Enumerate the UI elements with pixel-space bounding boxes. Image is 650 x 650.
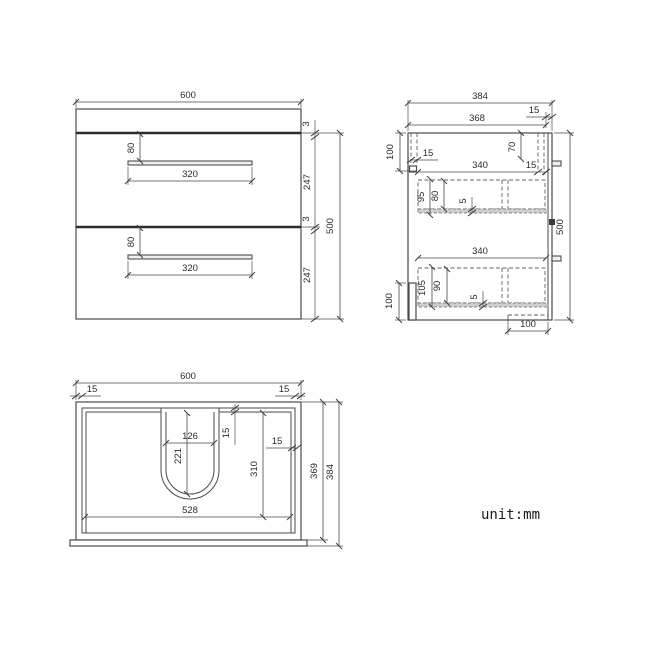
front-dim-label-247-1: 247	[302, 174, 313, 190]
front-dim-label-80-1: 80	[126, 143, 137, 154]
side-dim-label-15-front: 15	[526, 160, 537, 171]
drawing-svg: 600 80 320 80 320	[0, 0, 650, 650]
plan-dim-label-15-topwall: 15	[221, 428, 232, 439]
plan-dim-overall-width: 600 15 15	[70, 371, 305, 400]
side-dim-top: 384 368 15	[408, 91, 556, 131]
side-dim-label-80: 80	[430, 191, 441, 202]
plan-dim-label-15-sidewall: 15	[272, 436, 283, 447]
plan-dim-label-600: 600	[180, 371, 196, 382]
side-dim-label-100-top: 100	[385, 144, 396, 160]
front-dim-right-chain: 3 247 3 247	[301, 120, 344, 322]
side-dim-label-90: 90	[432, 281, 443, 292]
front-dim-label-500: 500	[325, 218, 336, 234]
front-drawer2-handle	[128, 255, 252, 259]
plan-dim-label-528: 528	[182, 505, 198, 516]
front-view: 600 80 320 80 320	[76, 90, 344, 322]
plan-dim-label-310: 310	[249, 461, 260, 477]
front-cabinet-outline	[76, 109, 301, 319]
plan-dim-label-384: 384	[325, 464, 336, 480]
plan-outline	[76, 402, 301, 540]
side-dim-label-70: 70	[507, 142, 518, 153]
side-dim-label-5-1: 5	[458, 198, 469, 203]
side-dim-label-340-1: 340	[472, 160, 488, 171]
front-dim-label-320-1: 320	[182, 169, 198, 180]
side-dim-label-15-back: 15	[423, 148, 434, 159]
side-dim-label-340-2: 340	[472, 246, 488, 257]
side-drawer2-handle	[552, 256, 561, 261]
plan-dim-label-369: 369	[309, 463, 320, 479]
side-dim-label-100-bottom: 100	[520, 319, 536, 330]
front-dim-label-320-2: 320	[182, 263, 198, 274]
front-dim-label-80-2: 80	[126, 237, 137, 248]
plan-dim-label-221: 221	[173, 448, 184, 464]
side-drawer1-handle	[552, 161, 561, 166]
plan-dim-label-15-left: 15	[87, 384, 98, 395]
plan-view: 126 221 15 15 310 528	[70, 371, 343, 546]
front-dim-label-600: 600	[180, 90, 196, 101]
side-dim-label-5-2: 5	[469, 294, 480, 299]
side-bottom-back-panel: 100	[384, 283, 416, 320]
side-view: 384 368 15 100 15 70	[384, 91, 574, 335]
vanity-technical-drawing: 600 80 320 80 320	[0, 0, 650, 650]
side-dim-label-100-left: 100	[384, 293, 395, 309]
front-dim-label-3-mid: 3	[301, 216, 312, 221]
front-dim-label-3-top: 3	[301, 121, 312, 126]
plan-dim-label-126: 126	[182, 431, 198, 442]
front-dim-label-247-2: 247	[302, 267, 313, 283]
side-dim-label-368: 368	[469, 113, 485, 124]
side-dim-label-15-top: 15	[529, 105, 540, 116]
front-drawer1-handle	[128, 161, 252, 165]
side-dim-label-384: 384	[472, 91, 488, 102]
front-dim-overall-height: 500	[325, 133, 340, 319]
front-dim-overall-width: 600	[76, 90, 301, 108]
plan-dim-label-15-right: 15	[279, 384, 290, 395]
side-dim-label-500: 500	[555, 219, 566, 235]
plan-bottom-band	[70, 540, 307, 546]
side-dim-label-105: 105	[417, 280, 428, 296]
side-dim-label-95: 95	[416, 192, 427, 203]
unit-label: unit:mm	[481, 507, 540, 523]
plan-dim-depth: 369 384	[302, 402, 343, 546]
